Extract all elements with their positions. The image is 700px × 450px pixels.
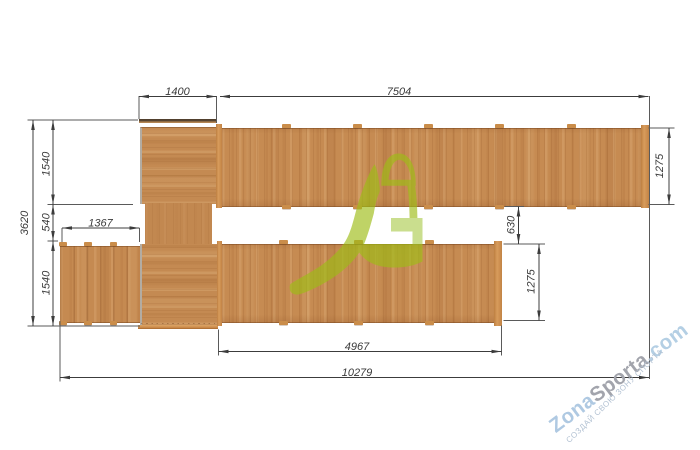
svg-text:1540: 1540 [41,270,53,295]
svg-text:540: 540 [41,212,53,231]
svg-text:1540: 1540 [41,151,53,176]
svg-text:10279: 10279 [342,367,373,379]
svg-text:1275: 1275 [526,268,538,293]
svg-text:7504: 7504 [387,86,411,98]
svg-text:3620: 3620 [19,210,31,235]
svg-text:1400: 1400 [165,86,190,98]
svg-text:4967: 4967 [345,341,370,353]
svg-text:630: 630 [506,215,518,234]
svg-text:1367: 1367 [88,217,113,229]
svg-text:1275: 1275 [654,153,666,178]
